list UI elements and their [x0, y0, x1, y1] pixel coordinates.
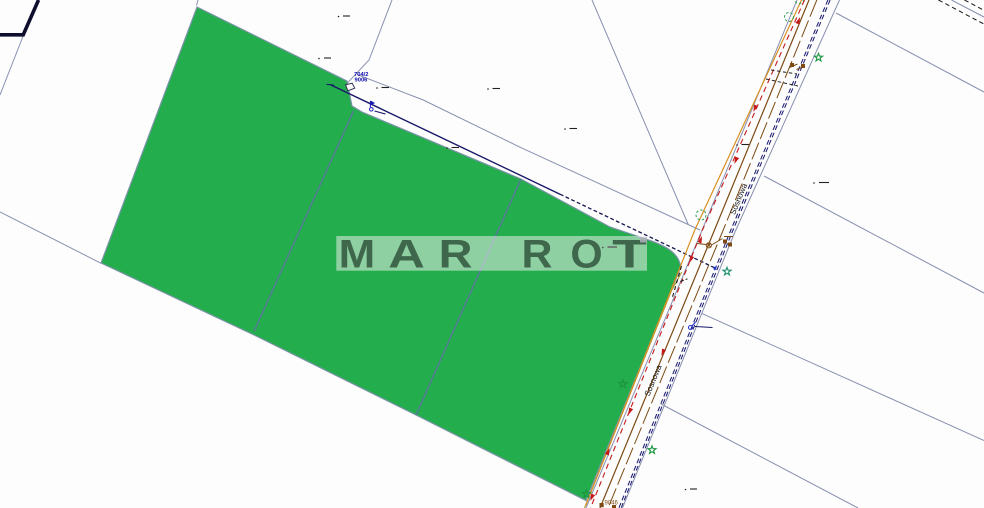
svg-text:O: O: [570, 233, 602, 277]
svg-text:A: A: [388, 233, 425, 277]
svg-text:M: M: [339, 233, 376, 277]
svg-text:9046: 9046: [605, 501, 619, 507]
svg-text:R: R: [439, 233, 473, 277]
svg-text:R: R: [522, 233, 553, 277]
svg-text:9006: 9006: [355, 77, 369, 83]
